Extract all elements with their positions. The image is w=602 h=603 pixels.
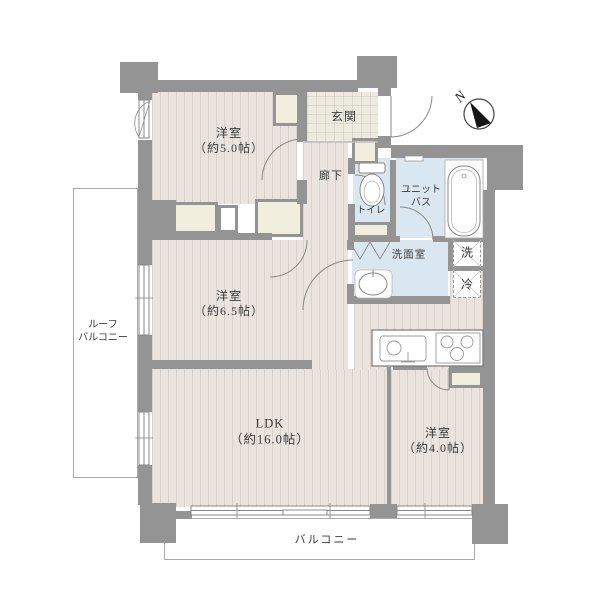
compass-north-label: N <box>452 88 470 106</box>
casement-window-arc <box>135 101 150 137</box>
floor-hallway <box>303 142 348 310</box>
fridge-label: 冷 <box>461 278 473 293</box>
wall <box>138 92 152 100</box>
pillar <box>487 158 523 190</box>
wall <box>393 363 427 370</box>
room5-label: 洋室 （約5.0帖） <box>194 126 264 156</box>
pillar <box>120 62 158 93</box>
genkan-label: 玄関 <box>331 110 357 125</box>
ldk-label: LDK （約16.0帖） <box>230 416 310 447</box>
floor-plan: N 洋室 （約5.0帖） 玄関 廊下 トイレ ユニット バス 洗面室 洗 冷 洋… <box>0 0 602 603</box>
wall <box>483 190 495 505</box>
wall <box>297 180 307 204</box>
washroom-label: 洗面室 <box>392 248 427 261</box>
shoe-cabinet <box>352 138 378 164</box>
roof-balcony-label: ルーフ バルコニー <box>78 320 128 345</box>
wall <box>378 88 391 96</box>
closet-b <box>255 199 303 237</box>
room65-label: 洋室 （約6.5帖） <box>194 289 264 319</box>
wall <box>138 465 152 505</box>
wall <box>449 363 485 370</box>
entrance-door-arc <box>391 96 432 137</box>
wall <box>448 240 453 268</box>
wall <box>348 158 355 174</box>
wall <box>352 236 400 242</box>
pillar <box>472 504 508 544</box>
pillar <box>140 503 176 543</box>
wall <box>176 511 192 519</box>
wall <box>297 92 307 142</box>
room4-label: 洋室 （約4.0帖） <box>403 426 473 456</box>
wall <box>138 140 152 202</box>
compass-icon: N <box>452 88 494 129</box>
wall <box>152 233 272 240</box>
wall <box>390 160 396 238</box>
closet-box <box>218 205 238 233</box>
partition-wall <box>387 367 391 507</box>
wall <box>150 360 312 369</box>
closet-room4 <box>449 370 483 388</box>
wall <box>391 145 523 158</box>
floor-kitchen <box>354 304 483 370</box>
wall <box>348 204 355 240</box>
wall <box>378 136 391 148</box>
wall <box>370 504 397 518</box>
toilet-label: トイレ <box>357 206 386 218</box>
wall <box>347 296 450 304</box>
wall <box>347 240 354 250</box>
wall <box>433 236 483 242</box>
washer-label: 洗 <box>461 246 473 261</box>
pillar <box>357 56 397 88</box>
wall <box>448 266 483 271</box>
wall <box>138 335 152 412</box>
unit-bath-label: ユニット バス <box>401 185 441 210</box>
wall <box>158 80 358 92</box>
wall <box>138 240 152 265</box>
hallway-label: 廊下 <box>319 170 343 184</box>
balcony-label: バルコニー <box>295 534 360 548</box>
